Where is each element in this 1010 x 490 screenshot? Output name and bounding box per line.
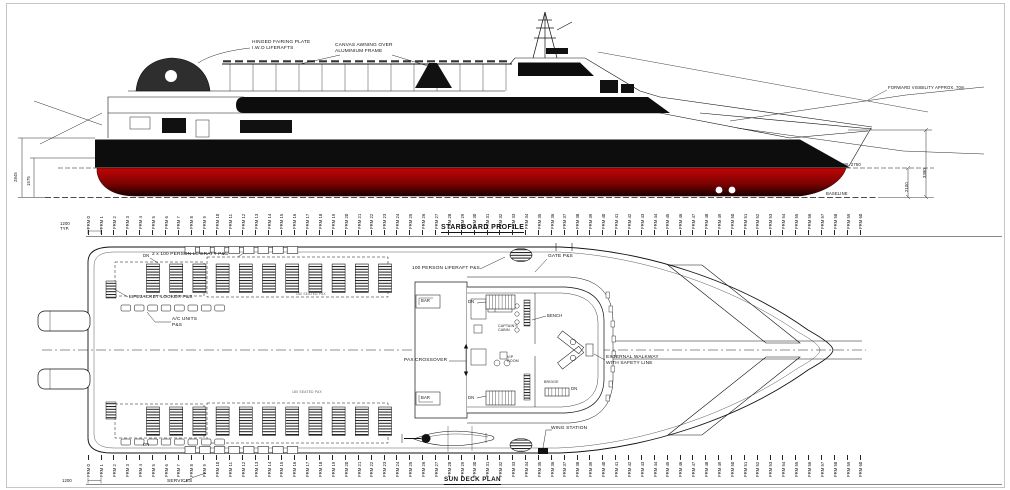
frame-tick-bottom <box>705 455 706 460</box>
frame-tick-bottom <box>680 455 681 460</box>
frame-tick-top <box>577 230 578 235</box>
frame-tick-bottom <box>113 455 114 460</box>
frame-label-top: FRM 46 <box>678 214 683 229</box>
frame-tick-top <box>306 230 307 235</box>
frame-tick-bottom <box>860 455 861 460</box>
frame-tick-top <box>718 230 719 235</box>
frame-tick-bottom <box>216 455 217 460</box>
frame-label-top: FRM 27 <box>434 214 439 229</box>
frame-tick-bottom <box>589 455 590 460</box>
label-liferaft-100: 100 PERSON LIFERAFT P&S <box>412 266 480 272</box>
frame-tick-bottom <box>242 455 243 460</box>
frame-tick-top <box>409 230 410 235</box>
label-pax-crossover: PAX CROSSOVER <box>404 358 447 364</box>
frame-tick-top <box>589 230 590 235</box>
dim-1575: 1575 <box>26 176 31 186</box>
frame-label-bottom: FRM 11 <box>228 462 233 477</box>
label-baseline: BASELINE <box>826 191 848 196</box>
frame-tick-top <box>860 230 861 235</box>
frame-tick-top <box>680 230 681 235</box>
frame-label-bottom: FRM 18 <box>318 462 323 477</box>
frame-label-bottom: FRM 27 <box>434 462 439 477</box>
frame-label-top: FRM 9 <box>202 216 207 229</box>
frame-label-top: FRM 21 <box>357 214 362 229</box>
frame-tick-bottom <box>602 455 603 460</box>
frame-tick-bottom <box>782 455 783 460</box>
frame-tick-top <box>628 230 629 235</box>
drawing-sheet: HINGED FAIRING PLATE I.W.O LIFERAFTS CAN… <box>0 0 1010 490</box>
frame-label-bottom: FRM 46 <box>678 462 683 477</box>
frame-tick-top <box>358 230 359 235</box>
frame-tick-top <box>551 230 552 235</box>
frame-label-bottom: FRM 35 <box>537 462 542 477</box>
label-typ-spacing-bottom: 1200 <box>62 478 72 483</box>
frame-label-top: FRM 40 <box>601 214 606 229</box>
frame-tick-bottom <box>409 455 410 460</box>
frame-tick-top <box>808 230 809 235</box>
frame-label-bottom: FRM 43 <box>640 462 645 477</box>
frame-tick-top <box>216 230 217 235</box>
frame-label-top: FRM 38 <box>575 214 580 229</box>
frame-label-top: FRM 3 <box>125 216 130 229</box>
frame-tick-bottom <box>139 455 140 460</box>
frame-tick-bottom <box>654 455 655 460</box>
frame-label-top: FRM 6 <box>164 216 169 229</box>
frame-label-top: FRM 10 <box>215 214 220 229</box>
frame-tick-bottom <box>332 455 333 460</box>
frame-tick-top <box>731 230 732 235</box>
label-liferaft-2x100: 2 x 100 PERSON LIFERAFT P&S <box>152 252 228 258</box>
frame-label-top: FRM 32 <box>498 214 503 229</box>
frame-label-bottom: FRM 9 <box>202 464 207 477</box>
frame-label-bottom: FRM 20 <box>344 462 349 477</box>
frame-label-top: FRM 50 <box>730 214 735 229</box>
frame-tick-bottom <box>615 455 616 460</box>
frame-tick-top <box>564 230 565 235</box>
plan-view <box>38 243 1002 485</box>
frame-tick-top <box>757 230 758 235</box>
label-hinged-fairing-plate: HINGED FAIRING PLATE I.W.O LIFERAFTS <box>252 40 310 52</box>
label-dn-5: DN <box>143 442 149 447</box>
frame-tick-top <box>203 230 204 235</box>
frame-label-bottom: FRM 32 <box>498 462 503 477</box>
frame-tick-top <box>705 230 706 235</box>
frame-label-bottom: FRM 23 <box>382 462 387 477</box>
frame-label-bottom: FRM 48 <box>704 462 709 477</box>
frame-tick-bottom <box>718 455 719 460</box>
label-wing-station: WING STATION <box>551 426 587 432</box>
frame-label-bottom: FRM 30 <box>472 462 477 477</box>
frame-tick-top <box>525 230 526 235</box>
frame-label-bottom: FRM 12 <box>241 462 246 477</box>
frame-label-top: FRM 60 <box>858 214 863 229</box>
frame-label-top: FRM 13 <box>254 214 259 229</box>
frame-tick-top <box>101 230 102 235</box>
frame-label-bottom: FRM 59 <box>846 462 851 477</box>
frame-tick-top <box>88 230 89 235</box>
label-captains-cabin: CAPTAIN'S CABIN <box>498 324 518 333</box>
frame-label-bottom: FRM 51 <box>743 462 748 477</box>
frame-label-bottom: FRM 0 <box>86 464 91 477</box>
frame-tick-bottom <box>152 455 153 460</box>
label-forward-visibility: FORWARD VISIBILITY APPROX. 70m <box>888 85 965 90</box>
frame-tick-top <box>512 230 513 235</box>
frame-label-bottom: FRM 45 <box>665 462 670 477</box>
frame-tick-bottom <box>203 455 204 460</box>
frame-label-top: FRM 29 <box>460 214 465 229</box>
frame-label-bottom: FRM 38 <box>575 462 580 477</box>
frame-label-top: FRM 36 <box>550 214 555 229</box>
frame-label-bottom: FRM 14 <box>267 462 272 477</box>
frame-label-bottom: FRM 8 <box>189 464 194 477</box>
frame-label-top: FRM 16 <box>292 214 297 229</box>
frame-tick-top <box>294 230 295 235</box>
frame-tick-top <box>654 230 655 235</box>
frame-tick-bottom <box>281 455 282 460</box>
frame-tick-bottom <box>126 455 127 460</box>
frame-label-bottom: FRM 40 <box>601 462 606 477</box>
frame-label-bottom: FRM 42 <box>627 462 632 477</box>
frame-label-bottom: FRM 47 <box>691 462 696 477</box>
frame-label-top: FRM 31 <box>485 214 490 229</box>
frame-tick-top <box>396 230 397 235</box>
frame-label-top: FRM 54 <box>781 214 786 229</box>
frame-tick-top <box>795 230 796 235</box>
frame-label-top: FRM 42 <box>627 214 632 229</box>
frame-label-bottom: FRM 28 <box>447 462 452 477</box>
frame-label-bottom: FRM 21 <box>357 462 362 477</box>
frame-tick-bottom <box>422 455 423 460</box>
frame-tick-bottom <box>577 455 578 460</box>
frame-label-bottom: FRM 57 <box>820 462 825 477</box>
label-external-walkway: EXTERNAL WALKWAY WITH SAFETY LINE <box>606 355 659 367</box>
frame-tick-top <box>641 230 642 235</box>
frame-label-bottom: FRM 39 <box>588 462 593 477</box>
frame-tick-top <box>345 230 346 235</box>
frame-label-top: FRM 44 <box>653 214 658 229</box>
frame-label-top: FRM 1 <box>99 216 104 229</box>
label-lifejacket-locker: LIFEJACKET LOCKER P&S <box>129 295 193 301</box>
frame-label-top: FRM 52 <box>755 214 760 229</box>
frame-tick-bottom <box>795 455 796 460</box>
frame-tick-top <box>435 230 436 235</box>
frame-label-top: FRM 5 <box>151 216 156 229</box>
frame-tick-top <box>255 230 256 235</box>
frame-label-bottom: FRM 26 <box>421 462 426 477</box>
frame-tick-top <box>538 230 539 235</box>
label-seated-pax-upper: 180 SEATED PAX <box>296 292 326 296</box>
frame-tick-top <box>499 230 500 235</box>
frame-label-top: FRM 55 <box>794 214 799 229</box>
frame-label-top: FRM 11 <box>228 214 233 229</box>
frame-tick-top <box>821 230 822 235</box>
label-dn-3: DN <box>468 395 474 400</box>
frame-tick-bottom <box>88 455 89 460</box>
label-typ-spacing-top: 1200 TYP. <box>60 221 70 232</box>
frame-label-top: FRM 19 <box>331 214 336 229</box>
frame-tick-bottom <box>319 455 320 460</box>
frame-label-bottom: FRM 34 <box>524 462 529 477</box>
label-dn-4: DN <box>571 386 577 391</box>
frame-tick-top <box>268 230 269 235</box>
frame-tick-bottom <box>268 455 269 460</box>
line-art <box>0 0 1010 490</box>
frame-label-top: FRM 12 <box>241 214 246 229</box>
frame-tick-bottom <box>229 455 230 460</box>
frame-tick-bottom <box>101 455 102 460</box>
frame-label-top: FRM 53 <box>768 214 773 229</box>
frame-label-bottom: FRM 53 <box>768 462 773 477</box>
frame-label-top: FRM 49 <box>717 214 722 229</box>
label-bar-upper: BAR <box>421 298 430 303</box>
frame-label-top: FRM 58 <box>833 214 838 229</box>
frame-label-top: FRM 7 <box>176 216 181 229</box>
frame-tick-bottom <box>834 455 835 460</box>
frame-label-bottom: FRM 50 <box>730 462 735 477</box>
frame-tick-top <box>371 230 372 235</box>
frame-tick-bottom <box>499 455 500 460</box>
frame-tick-bottom <box>474 455 475 460</box>
frame-label-top: FRM 14 <box>267 214 272 229</box>
frame-tick-bottom <box>191 455 192 460</box>
frame-label-bottom: FRM 60 <box>858 462 863 477</box>
frame-tick-top <box>487 230 488 235</box>
frame-label-top: FRM 39 <box>588 214 593 229</box>
frame-label-bottom: FRM 16 <box>292 462 297 477</box>
frame-label-bottom: FRM 49 <box>717 462 722 477</box>
frame-label-top: FRM 28 <box>447 214 452 229</box>
frame-tick-bottom <box>641 455 642 460</box>
frame-tick-top <box>692 230 693 235</box>
frame-tick-bottom <box>165 455 166 460</box>
frame-tick-top <box>165 230 166 235</box>
dim-2100: 2100 <box>904 182 909 192</box>
frame-label-top: FRM 35 <box>537 214 542 229</box>
label-dwl: DWL 2750 <box>840 162 861 167</box>
frame-label-top: FRM 48 <box>704 214 709 229</box>
frame-label-bottom: FRM 52 <box>755 462 760 477</box>
frame-label-bottom: FRM 19 <box>331 462 336 477</box>
frame-label-top: FRM 30 <box>472 214 477 229</box>
frame-label-top: FRM 57 <box>820 214 825 229</box>
frame-label-bottom: FRM 17 <box>305 462 310 477</box>
frame-tick-bottom <box>345 455 346 460</box>
frame-tick-top <box>384 230 385 235</box>
frame-tick-bottom <box>692 455 693 460</box>
frame-tick-bottom <box>551 455 552 460</box>
frame-tick-top <box>667 230 668 235</box>
frame-tick-bottom <box>487 455 488 460</box>
frame-label-bottom: FRM 31 <box>485 462 490 477</box>
frame-label-top: FRM 56 <box>807 214 812 229</box>
frame-tick-bottom <box>371 455 372 460</box>
frame-label-bottom: FRM 1 <box>99 464 104 477</box>
frame-tick-top <box>332 230 333 235</box>
label-vip-room: VIP ROOM <box>507 355 519 364</box>
frame-tick-top <box>139 230 140 235</box>
title-sun-deck-plan: SUN DECK PLAN <box>444 476 501 485</box>
label-canvas-awning: CANVAS AWNING OVER ALUMINIUM FRAME <box>335 43 393 55</box>
frame-tick-top <box>126 230 127 235</box>
frame-label-bottom: FRM 4 <box>138 464 143 477</box>
frame-label-bottom: FRM 3 <box>125 464 130 477</box>
frame-label-bottom: FRM 25 <box>408 462 413 477</box>
frame-label-bottom: FRM 13 <box>254 462 259 477</box>
frame-tick-bottom <box>384 455 385 460</box>
frame-tick-top <box>113 230 114 235</box>
frame-label-bottom: FRM 10 <box>215 462 220 477</box>
frame-tick-bottom <box>435 455 436 460</box>
frame-label-top: FRM 45 <box>665 214 670 229</box>
frame-label-top: FRM 34 <box>524 214 529 229</box>
frame-tick-bottom <box>525 455 526 460</box>
mast <box>533 12 572 58</box>
frame-label-top: FRM 20 <box>344 214 349 229</box>
frame-tick-bottom <box>512 455 513 460</box>
frame-label-bottom: FRM 37 <box>562 462 567 477</box>
window-band <box>236 97 670 113</box>
frame-label-top: FRM 43 <box>640 214 645 229</box>
frame-tick-bottom <box>757 455 758 460</box>
frame-label-bottom: FRM 41 <box>614 462 619 477</box>
label-bench: BENCH <box>547 313 562 318</box>
frame-tick-bottom <box>770 455 771 460</box>
frame-tick-bottom <box>306 455 307 460</box>
frame-label-bottom: FRM 58 <box>833 462 838 477</box>
frame-tick-top <box>602 230 603 235</box>
frame-label-bottom: FRM 33 <box>511 462 516 477</box>
frame-tick-top <box>152 230 153 235</box>
frame-label-bottom: FRM 22 <box>369 462 374 477</box>
frame-label-top: FRM 0 <box>86 216 91 229</box>
frame-tick-bottom <box>461 455 462 460</box>
frame-tick-top <box>847 230 848 235</box>
frame-label-bottom: FRM 7 <box>176 464 181 477</box>
frame-label-bottom: FRM 56 <box>807 462 812 477</box>
frame-label-top: FRM 17 <box>305 214 310 229</box>
frame-tick-bottom <box>628 455 629 460</box>
frame-tick-top <box>229 230 230 235</box>
frame-tick-bottom <box>255 455 256 460</box>
frame-tick-top <box>461 230 462 235</box>
frame-label-bottom: FRM 44 <box>653 462 658 477</box>
profile-view <box>18 12 1002 237</box>
label-dn-1: DN <box>143 253 149 258</box>
label-ac-units: A/C UNITS P&S <box>172 317 197 329</box>
frame-tick-bottom <box>667 455 668 460</box>
frame-label-top: FRM 26 <box>421 214 426 229</box>
frame-tick-top <box>422 230 423 235</box>
frame-label-top: FRM 22 <box>369 214 374 229</box>
frame-label-bottom: FRM 5 <box>151 464 156 477</box>
frame-label-bottom: FRM 55 <box>794 462 799 477</box>
frame-label-bottom: FRM 29 <box>460 462 465 477</box>
frame-label-top: FRM 8 <box>189 216 194 229</box>
frame-label-top: FRM 24 <box>395 214 400 229</box>
frame-tick-bottom <box>847 455 848 460</box>
frame-label-top: FRM 37 <box>562 214 567 229</box>
frame-label-top: FRM 47 <box>691 214 696 229</box>
frame-label-top: FRM 51 <box>743 214 748 229</box>
frame-label-top: FRM 25 <box>408 214 413 229</box>
frame-label-top: FRM 23 <box>382 214 387 229</box>
frame-tick-bottom <box>178 455 179 460</box>
frame-label-bottom: FRM 15 <box>279 462 284 477</box>
frame-label-top: FRM 59 <box>846 214 851 229</box>
frame-tick-bottom <box>538 455 539 460</box>
frame-label-bottom: FRM 36 <box>550 462 555 477</box>
frame-tick-top <box>242 230 243 235</box>
frame-tick-bottom <box>358 455 359 460</box>
frame-tick-top <box>448 230 449 235</box>
dim-2845: 2845 <box>13 172 18 182</box>
frame-tick-top <box>744 230 745 235</box>
frame-label-top: FRM 15 <box>279 214 284 229</box>
frame-label-top: FRM 2 <box>112 216 117 229</box>
frame-tick-top <box>319 230 320 235</box>
frame-tick-bottom <box>448 455 449 460</box>
label-seated-pax-lower: 180 SEATED PAX <box>292 390 322 394</box>
hull-band <box>95 140 850 168</box>
frame-tick-bottom <box>294 455 295 460</box>
label-bridge: BRIDGE <box>544 380 559 384</box>
frame-tick-top <box>615 230 616 235</box>
frame-tick-top <box>834 230 835 235</box>
frame-label-bottom: FRM 54 <box>781 462 786 477</box>
frame-label-top: FRM 41 <box>614 214 619 229</box>
frame-label-top: FRM 33 <box>511 214 516 229</box>
frame-tick-bottom <box>731 455 732 460</box>
frame-tick-top <box>782 230 783 235</box>
frame-tick-top <box>770 230 771 235</box>
frame-tick-bottom <box>564 455 565 460</box>
frame-tick-top <box>178 230 179 235</box>
frame-label-top: FRM 18 <box>318 214 323 229</box>
frame-tick-bottom <box>744 455 745 460</box>
frame-label-bottom: FRM 6 <box>164 464 169 477</box>
label-bar-lower: BAR <box>421 395 430 400</box>
frame-label-bottom: FRM 24 <box>395 462 400 477</box>
label-dn-2: DN <box>468 299 474 304</box>
label-gate: GATE P&S <box>548 254 573 260</box>
frame-tick-top <box>281 230 282 235</box>
frame-tick-bottom <box>808 455 809 460</box>
frame-tick-bottom <box>396 455 397 460</box>
frame-tick-top <box>191 230 192 235</box>
dim-3380: 3380 <box>922 168 927 178</box>
frame-tick-bottom <box>821 455 822 460</box>
label-services: SERVICES <box>167 479 192 485</box>
frame-label-bottom: FRM 2 <box>112 464 117 477</box>
frame-label-top: FRM 4 <box>138 216 143 229</box>
frame-tick-top <box>474 230 475 235</box>
